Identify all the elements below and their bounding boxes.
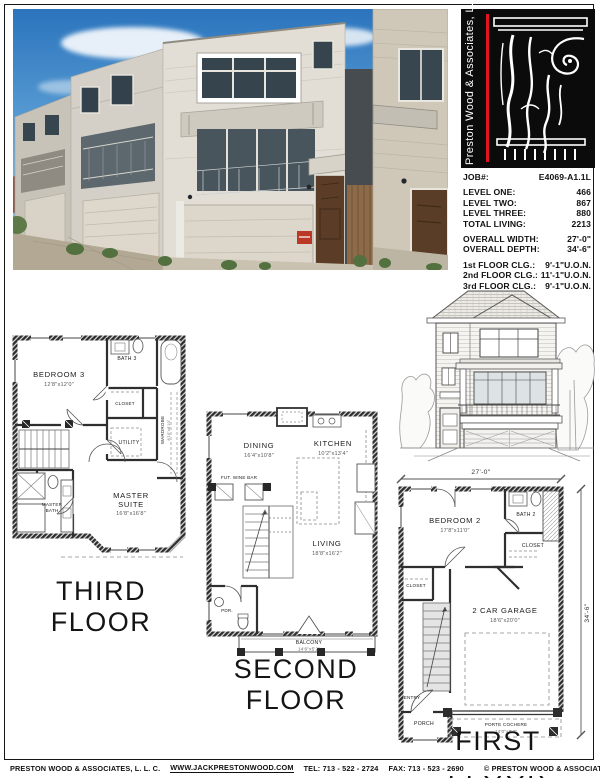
stairs (243, 506, 293, 578)
depth-dim-text: 34'-6" (584, 603, 591, 622)
room-label-dining: DINING (244, 441, 275, 450)
front-elevation-drawing (398, 280, 596, 462)
room-dims-master: 16'8"x16'8" (116, 511, 146, 517)
room-label-utility: UTILITY (118, 440, 139, 446)
job-number: E4069-A1.1L (539, 172, 591, 182)
room-label-bath2: BATH 2 (516, 512, 535, 518)
level-two-value: 867 (576, 198, 591, 208)
room-dims-bedroom3: 12'8"x12'0" (44, 382, 74, 388)
company-logo: Preston Wood & Associates, L.L.C. (461, 9, 595, 168)
plan-sheet: Preston Wood & Associates, L.L.C. (0, 0, 600, 778)
overall-depth-value: 34'-6" (567, 244, 591, 254)
overall-depth-label: OVERALL DEPTH: (463, 244, 540, 254)
room-label-bedroom3: BEDROOM 3 (33, 370, 85, 379)
second-floor-title: SECOND FLOOR (198, 654, 394, 716)
room-label-bath3: BATH 3 (117, 356, 136, 362)
room-label-closet3: CLOSET (115, 401, 135, 406)
room-label-master-1: MASTER (113, 491, 149, 500)
room-label-masterbath-1: MASTER (42, 502, 63, 507)
house (427, 291, 565, 448)
level-one-value: 466 (576, 187, 591, 197)
room-label-entry: ENTRY (404, 695, 421, 700)
third-floor-title: THIRD FLOOR (18, 576, 184, 638)
footer-company: PRESTON WOOD & ASSOCIATES, L. L. C. (10, 764, 160, 773)
room-dims-wardrobe: 8'10"x6'10" (167, 419, 171, 440)
overall-width-label: OVERALL WIDTH: (463, 234, 539, 244)
townhome-left (71, 49, 163, 259)
width-dim-text: 27'-0" (471, 469, 490, 476)
room-label-balcony: BALCONY (296, 640, 323, 646)
room-label-garage: 2 CAR GARAGE (472, 606, 537, 615)
townhome-center (163, 23, 355, 270)
company-name-vertical: Preston Wood & Associates, L.L.C. (464, 11, 484, 165)
room-label-masterbath-2: BATH (46, 508, 59, 513)
clg1-value: 9'-1"U.O.N. (545, 260, 591, 270)
column-capital-icon (491, 13, 591, 164)
room-dims-kitchen: 10'2"x13'4" (318, 451, 348, 457)
room-label-winebar: FUT. WINE BAR (221, 475, 258, 480)
total-living-value: 2213 (571, 219, 591, 229)
clg1-label: 1st FLOOR CLG.: (463, 260, 535, 270)
job-number-row: JOB#: E4069-A1.1L (463, 172, 591, 182)
job-label: JOB#: (463, 172, 489, 182)
room-label-closet-right: CLOSET (522, 543, 544, 549)
room-dims-balcony: 14'6"x5'2" (298, 647, 320, 652)
footer-tel: TEL: 713 - 522 - 2724 (304, 764, 379, 773)
level-three-label: LEVEL THREE: (463, 208, 526, 218)
footer-copyright: © PRESTON WOOD & ASSOCIATES, L. L. C. CO… (484, 764, 600, 773)
room-label-wardrobe: WARDROBE (160, 416, 165, 444)
room-dims-bedroom2: 17'8"x11'0" (440, 528, 469, 534)
footer-bar: PRESTON WOOD & ASSOCIATES, L. L. C. WWW.… (4, 759, 594, 776)
first-floor-plan: 27'-0" 34'-6" (393, 463, 597, 747)
room-dims-dining: 16'4"x10'8" (244, 453, 274, 459)
level-two-label: LEVEL TWO: (463, 198, 517, 208)
footer-fax: FAX: 713 - 523 - 2690 (389, 764, 464, 773)
room-label-kitchen: KITCHEN (314, 439, 352, 448)
room-label-master-2: SUITE (118, 500, 144, 509)
website-link[interactable]: WWW.JACKPRESTONWOOD.COM (170, 763, 293, 773)
second-floor-plan: DINING 16'4"x10'8" KITCHEN 10'2"x13'4" F… (205, 406, 381, 658)
room-label-bedroom2: BEDROOM 2 (429, 516, 481, 525)
third-floor-plan: BEDROOM 3 12'8"x12'0" BATH 3 CLOSET WARD… (11, 330, 191, 560)
townhome-right (373, 9, 448, 270)
stairs (19, 430, 69, 468)
passage-fence (345, 69, 373, 265)
level-one-label: LEVEL ONE: (463, 187, 515, 197)
total-living-label: TOTAL LIVING: (463, 219, 526, 229)
stairs (423, 603, 450, 691)
width-dimension (397, 475, 565, 483)
room-dims-living: 18'8"x16'2" (312, 551, 342, 557)
level-three-value: 880 (576, 208, 591, 218)
room-dims-garage: 18'6"x20'0" (490, 618, 520, 624)
overall-width-value: 27'-0" (567, 234, 591, 244)
townhomes-photo (13, 9, 448, 270)
logo-red-stripe (486, 14, 489, 162)
room-label-pdr: PDR. (221, 608, 233, 613)
room-label-living: LIVING (312, 539, 341, 548)
room-label-closet-left: CLOSET (406, 583, 426, 588)
job-info-panel: JOB#: E4069-A1.1L LEVEL ONE:466 LEVEL TW… (463, 172, 591, 291)
